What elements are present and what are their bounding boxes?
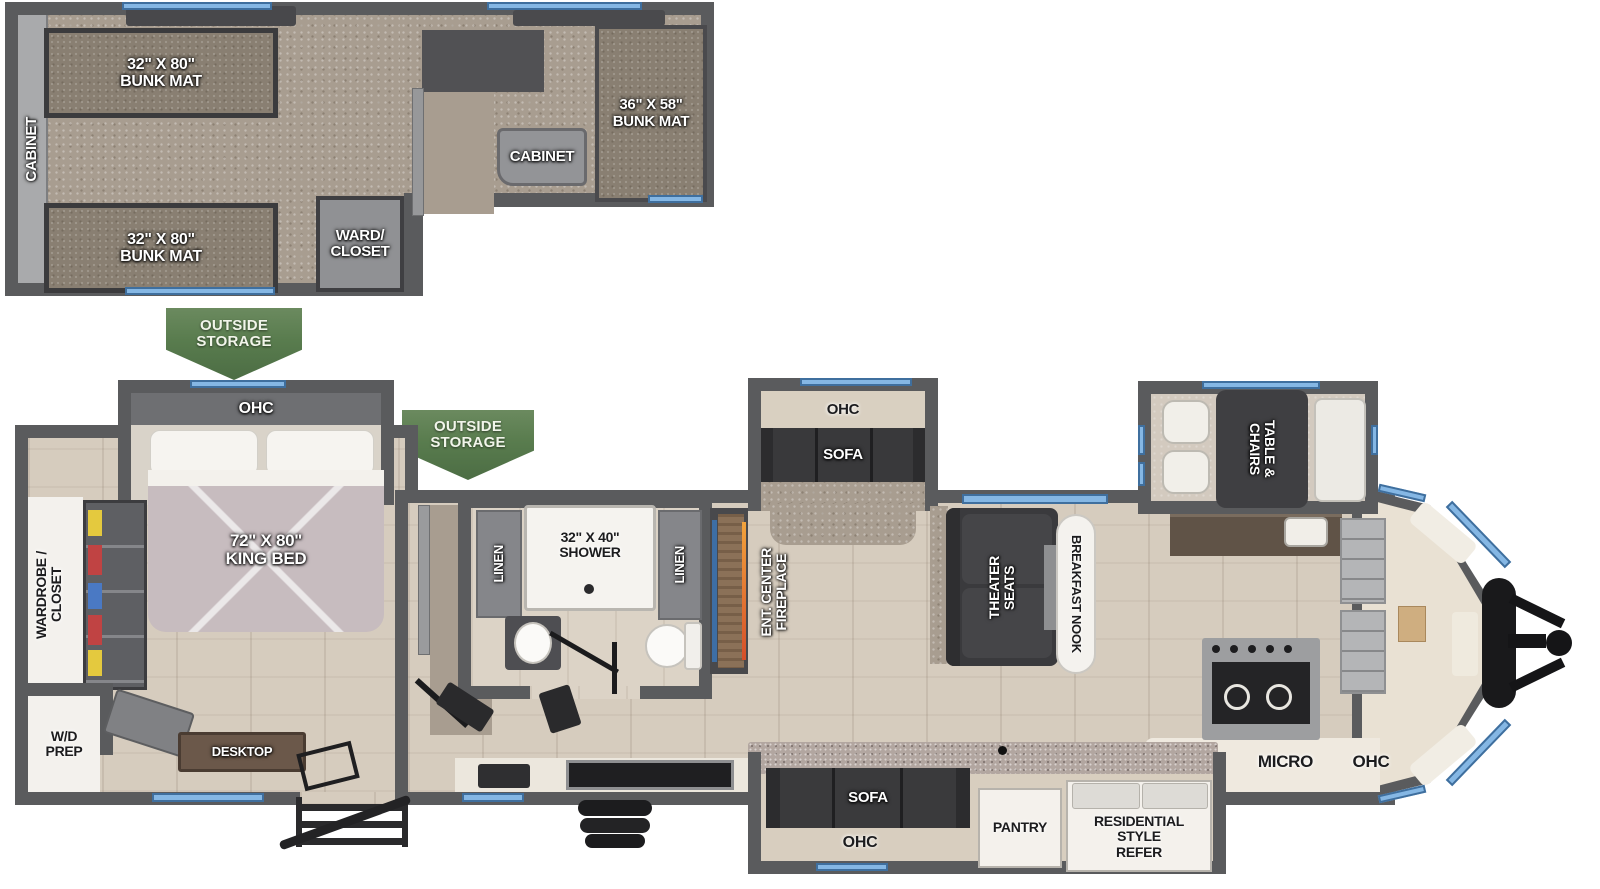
clothes-red xyxy=(88,615,102,645)
range-knob xyxy=(1284,645,1292,653)
door-swing xyxy=(612,642,617,694)
window xyxy=(152,793,264,802)
linen-right-label: LINEN xyxy=(658,510,702,620)
bathroom-sink xyxy=(514,622,552,664)
pantry-label: PANTRY xyxy=(978,788,1062,868)
tv-screen xyxy=(712,520,717,662)
window xyxy=(816,863,888,871)
range-knob xyxy=(1248,645,1256,653)
window xyxy=(122,2,272,10)
shower-drain xyxy=(584,584,594,594)
slide-wall xyxy=(1213,752,1226,874)
king-bed-label: 72" X 80" KING BED xyxy=(148,520,384,580)
window xyxy=(1202,381,1320,389)
stair-rail xyxy=(418,505,430,655)
hitch-frame-bar xyxy=(1509,594,1566,628)
toilet-tank xyxy=(684,622,702,670)
outside-storage-banner-rear: OUTSIDE STORAGE xyxy=(166,308,302,380)
shower-label: 32" X 40" SHOWER xyxy=(524,510,656,580)
linen-left-label: LINEN xyxy=(476,510,522,618)
window xyxy=(962,494,1108,504)
outside-storage-banner-mid: OUTSIDE STORAGE xyxy=(402,410,534,480)
sofa-slide-ohc: OHC xyxy=(761,391,925,429)
bedroom-ohc: OHC xyxy=(131,393,381,425)
kitchen-cabinet-column xyxy=(1340,518,1386,604)
dinette-chair xyxy=(1162,400,1210,444)
loft-overhead-shelf xyxy=(513,10,665,26)
window xyxy=(800,378,912,386)
kitchen-cabinet-column xyxy=(1340,610,1386,694)
refer-label: RESIDENTIAL STYLE REFER xyxy=(1066,806,1212,868)
wd-prep-label: W/D PREP xyxy=(28,696,100,792)
fireplace-flame xyxy=(742,522,746,660)
kitchen-sink xyxy=(1284,517,1328,547)
slide-wall xyxy=(748,752,761,874)
window xyxy=(190,380,286,388)
wardrobe-closet-label: WARDROBE / CLOSET xyxy=(24,497,74,693)
wall-segment xyxy=(15,683,113,696)
nose-panel xyxy=(1452,612,1478,676)
range-knob xyxy=(1212,645,1220,653)
faucet xyxy=(998,746,1007,755)
fold-step xyxy=(578,800,652,816)
window xyxy=(125,287,275,295)
range-knob xyxy=(1266,645,1274,653)
bunk-mat-front: 36" X 58" BUNK MAT xyxy=(595,25,707,202)
burner xyxy=(1266,684,1292,710)
slide-carpet-patch xyxy=(770,503,916,545)
loft-stairs xyxy=(424,92,494,214)
outside-storage-banner-mid-label: OUTSIDE STORAGE xyxy=(402,414,534,456)
bunk-mat-bottom: 32" X 80" BUNK MAT xyxy=(44,203,278,293)
burner xyxy=(1224,684,1250,710)
slide-sofa-label: SOFA xyxy=(761,430,925,480)
nose-table xyxy=(1398,606,1426,642)
kitchen-ohc-label: OHC xyxy=(1340,748,1402,776)
lower-ohc-label: OHC xyxy=(822,830,898,856)
window xyxy=(487,2,642,10)
entry-step xyxy=(300,838,402,845)
stairwell-opening xyxy=(422,30,544,92)
hitch-frame-bar xyxy=(1509,658,1566,692)
fold-step xyxy=(585,834,645,848)
hitch-crossbar xyxy=(1508,634,1546,648)
fold-step xyxy=(580,818,650,833)
ward-closet: WARD/ CLOSET xyxy=(316,196,404,292)
loft-stair-rail xyxy=(412,88,424,216)
clothes-yellow xyxy=(88,650,102,676)
hitch-coupler xyxy=(1546,630,1572,656)
range-knob xyxy=(1230,645,1238,653)
breakfast-nook-label: BREAKFAST NOOK xyxy=(1056,514,1096,674)
loft-cabinet-landing: CABINET xyxy=(497,128,587,186)
counter-inset xyxy=(566,760,734,790)
clothes-blue xyxy=(88,583,102,609)
window xyxy=(648,195,703,203)
dinette-chair xyxy=(1162,450,1210,494)
window xyxy=(1371,425,1378,455)
lower-sofa-label: SOFA xyxy=(766,770,970,826)
micro-label: MICRO xyxy=(1238,748,1333,776)
outside-storage-banner-rear-label: OUTSIDE STORAGE xyxy=(166,312,302,356)
nook-table-support xyxy=(1044,545,1056,630)
clothes-yellow xyxy=(88,510,102,536)
theater-seats-label: THEATER SEATS xyxy=(946,508,1058,666)
counter-appliance xyxy=(478,764,530,788)
toilet-bowl xyxy=(645,624,689,668)
bunk-mat-top: 32" X 80" BUNK MAT xyxy=(44,28,278,118)
table-chairs-label: TABLE & CHAIRS xyxy=(1216,390,1308,508)
window xyxy=(1138,425,1145,455)
floorplan-canvas: CABINET 32" X 80" BUNK MAT 32" X 80" BUN… xyxy=(0,0,1600,889)
ent-center-wood xyxy=(718,514,744,668)
desktop-label: DESKTOP xyxy=(178,734,306,770)
window xyxy=(1138,462,1145,486)
clothes-red xyxy=(88,545,102,575)
dinette-bench xyxy=(1314,398,1366,502)
window xyxy=(462,793,524,802)
